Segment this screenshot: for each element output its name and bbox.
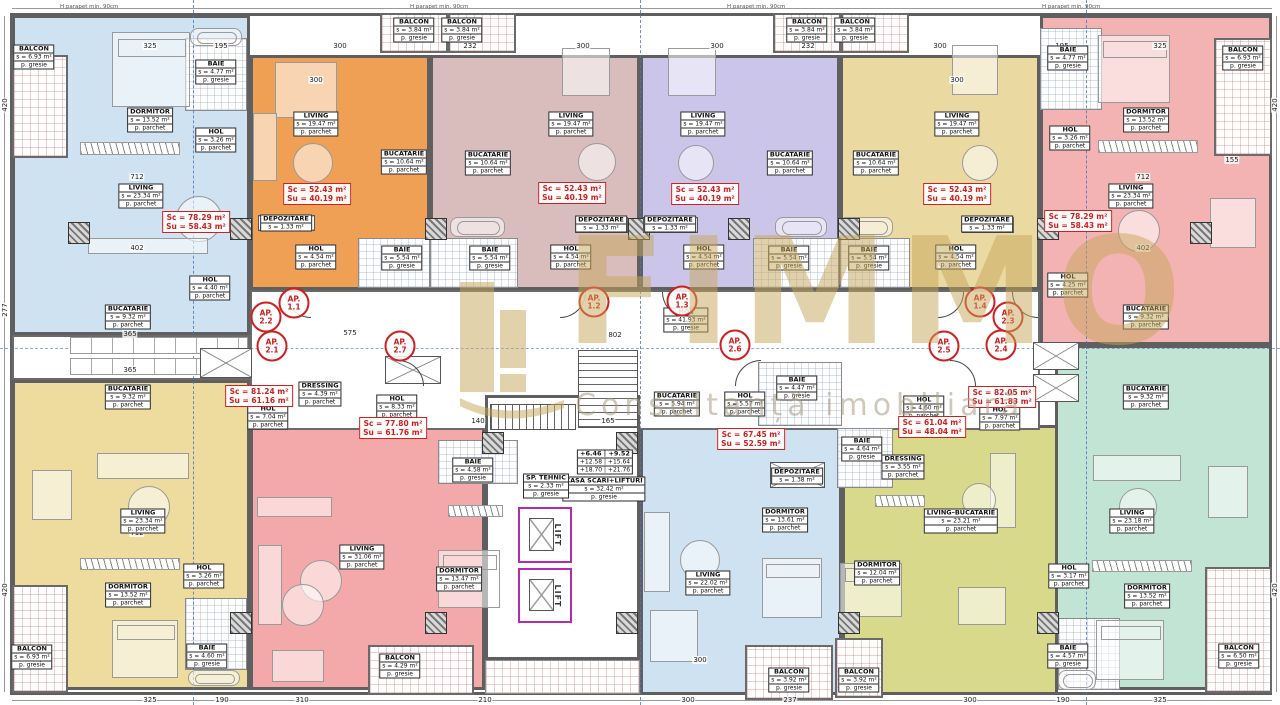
dimension-label: 325 bbox=[142, 42, 157, 50]
room-label: BAIEs = 4.47 m²p. gresie bbox=[776, 376, 817, 401]
furniture-rect bbox=[958, 587, 1006, 625]
room-label: BAIEs = 4.77 m²p. gresie bbox=[195, 60, 236, 85]
dimension-label: 190 bbox=[214, 696, 229, 704]
furniture-tub bbox=[188, 670, 240, 686]
dimension-label: 300 bbox=[949, 76, 964, 84]
room-label: BUCATARIEs = 10.64 m²p. parchet bbox=[767, 151, 813, 176]
furniture-rect bbox=[258, 545, 282, 625]
room-label: LIVINGs = 23.34 m²p. parchet bbox=[120, 509, 165, 534]
furniture-hatchstrip bbox=[80, 142, 180, 155]
furniture-rect bbox=[275, 62, 337, 118]
sc-su-label: Sc = 81.24 m²Su = 61.16 m² bbox=[225, 385, 293, 407]
room-label: LIVINGs = 23.18 m²p. parchet bbox=[1109, 509, 1154, 534]
dimension-label: 712 bbox=[129, 173, 144, 181]
technical-room-label: SP. TEHNICs = 2.33 m²p. gresie bbox=[523, 474, 569, 499]
room-label: HOLs = 3.26 m²p. parchet bbox=[195, 128, 236, 153]
furniture-rect bbox=[650, 610, 698, 662]
dimension-label: 300 bbox=[962, 696, 977, 704]
room-label: BUCATARIEs = 9.32 m²p. parchet bbox=[1123, 305, 1169, 330]
room-label: HOLs = 3.17 m²p. parchet bbox=[1048, 564, 1089, 589]
room-label: HOLs = 8.33 m²p. parchet bbox=[376, 395, 417, 420]
furniture-rect bbox=[952, 45, 998, 95]
dimension-label: 325 bbox=[1152, 696, 1167, 704]
structural-pier bbox=[1037, 612, 1059, 634]
room-label: BUCATARIEs = 10.64 m²p. parchet bbox=[381, 150, 427, 175]
dimension-label: 232 bbox=[462, 42, 477, 50]
room-label: LIVINGs = 31.06 m²p. parchet bbox=[339, 545, 384, 570]
room-label: HOLs = 5.57 m²p. parchet bbox=[724, 392, 765, 417]
balcony bbox=[12, 585, 68, 693]
balcony-label: BALCONs = 6.50 m²p. gresie bbox=[1218, 644, 1259, 669]
room-label: HOLs = 4.54 m²p. parchet bbox=[935, 245, 976, 270]
room-label: LIVINGs = 22.02 m²p. parchet bbox=[685, 571, 730, 596]
furniture-rect bbox=[644, 512, 670, 592]
furniture-tub bbox=[1058, 670, 1096, 690]
room-label: BUCATARIEs = 10.64 m²p. parchet bbox=[465, 151, 511, 176]
ap-badge: AP.1.2 bbox=[579, 287, 610, 318]
balcony-label: BALCONs = 3.84 m²p. gresie bbox=[834, 18, 875, 43]
dimension-label: 140 bbox=[470, 417, 485, 425]
structural-pier bbox=[68, 222, 90, 244]
furniture-hatchstrip bbox=[448, 505, 503, 517]
furniture-rect bbox=[253, 113, 277, 181]
furniture-circle bbox=[678, 145, 714, 181]
furniture-bed bbox=[762, 558, 822, 618]
ap-badge: AP.1.1 bbox=[279, 288, 310, 319]
sc-su-label: Sc = 52.43 m²Su = 40.19 m² bbox=[923, 183, 991, 205]
parapet-note: H parapet min. 90cm bbox=[410, 4, 468, 10]
balcony-label: BALCONs = 3.84 m²p. gresie bbox=[786, 18, 827, 43]
ap-badge: AP.2.3 bbox=[993, 302, 1024, 333]
furniture-rect bbox=[562, 48, 610, 96]
floor-plan: BALCONs = 6.93 m²p. gresieBALCONs = 3.84… bbox=[0, 0, 1280, 705]
structural-pier bbox=[616, 612, 638, 634]
sc-su-label: Sc = 52.43 m²Su = 40.19 m² bbox=[283, 183, 351, 205]
room-label: BAIEs = 4.64 m²p. gresie bbox=[841, 437, 882, 462]
parapet-note: H parapet min. 90cm bbox=[727, 4, 785, 10]
ap-badge: AP.2.2 bbox=[251, 302, 282, 333]
dimension-label: 277 bbox=[1, 302, 9, 317]
room-label: BUCATARIEs = 10.64 m²p. parchet bbox=[853, 151, 899, 176]
furniture-bed bbox=[1096, 620, 1164, 680]
dimension-label: 420 bbox=[1, 97, 9, 112]
furniture-bed bbox=[112, 620, 178, 678]
room-label: BUCATARIEs = 5.94 m²p. parchet bbox=[654, 392, 700, 417]
room-label: HOLs = 4.40 m²p. parchet bbox=[189, 276, 230, 301]
room-label: LIVING–BUCATARIEs = 23.21 m²p. parchet bbox=[924, 509, 998, 534]
dimension-line bbox=[12, 700, 1272, 701]
dimension-label: 300 bbox=[680, 696, 695, 704]
ap-badge: AP.2.7 bbox=[385, 331, 416, 362]
room-label: HOLs = 7.97 m²p. parchet bbox=[979, 406, 1020, 431]
dimension-label: 300 bbox=[709, 42, 724, 50]
furniture-hatchstrip bbox=[1092, 560, 1192, 572]
dimension-label: 210 bbox=[477, 696, 492, 704]
storage-box bbox=[200, 348, 252, 378]
ap-badge: AP.2.6 bbox=[720, 330, 751, 361]
room-label: HOLs = 4.54 m²p. parchet bbox=[550, 245, 591, 270]
ap-badge: AP.1.4 bbox=[965, 287, 996, 318]
room-label: BUCATARIEs = 9.32 m²p. parchet bbox=[105, 305, 151, 330]
dimension-label: 300 bbox=[308, 76, 323, 84]
structural-pier bbox=[838, 218, 860, 240]
dimension-label: 300 bbox=[692, 656, 707, 664]
dimension-label: 325 bbox=[142, 696, 157, 704]
balcony-label: BALCONs = 4.29 m²p. gresie bbox=[379, 654, 420, 679]
room-label: DEPOZITAREs = 1.38 m² bbox=[771, 468, 823, 485]
sc-su-label: Sc = 67.45 m²Su = 52.59 m² bbox=[717, 428, 785, 450]
parapet-note: H parapet min. 90cm bbox=[1042, 4, 1100, 10]
furniture-hatchstrip bbox=[80, 558, 180, 570]
balcony-label: BALCONs = 3.84 m²p. gresie bbox=[393, 18, 434, 43]
dimension-label: 712 bbox=[1135, 173, 1150, 181]
dimension-label: 232 bbox=[800, 42, 815, 50]
sc-su-label: Sc = 52.43 m²Su = 40.19 m² bbox=[671, 183, 739, 205]
axis-line bbox=[1086, 0, 1087, 705]
room-label: DEPOZITAREs = 1.33 m² bbox=[644, 216, 696, 233]
storage-box bbox=[1033, 374, 1079, 402]
dimension-label: 420 bbox=[1271, 582, 1279, 597]
dimension-label: 300 bbox=[575, 42, 590, 50]
room-label: BUCATARIEs = 9.32 m²p. parchet bbox=[105, 385, 151, 410]
room-label: BUCATARIEs = 9.32 m²p. parchet bbox=[1123, 385, 1169, 410]
room-label: BAIEs = 5.54 m²p. gresie bbox=[768, 246, 809, 271]
room-label: DRESSINGs = 3.55 m²p. parchet bbox=[881, 455, 924, 480]
dimension-label: 310 bbox=[294, 696, 309, 704]
room-label: DEPOZITAREs = 1.33 m² bbox=[575, 216, 627, 233]
sc-su-label: Sc = 82.05 m²Su = 61.83 m² bbox=[968, 386, 1036, 408]
room-label: DORMITORs = 13.52 m²p. parchet bbox=[105, 583, 151, 608]
lift-shaft: LIFT bbox=[518, 568, 572, 623]
room-label: BAIEs = 5.54 m²p. gresie bbox=[848, 246, 889, 271]
room-label: DORMITORs = 13.52 m²p. parchet bbox=[1123, 108, 1169, 133]
room-label: DORMITORs = 13.52 m²p. parchet bbox=[127, 108, 173, 133]
structural-pier bbox=[482, 432, 504, 454]
room-label: DORMITORs = 13.61 m²p. parchet bbox=[762, 508, 808, 533]
furniture-rect bbox=[1208, 466, 1248, 518]
ap-badge: AP.2.1 bbox=[257, 331, 288, 362]
structural-pier bbox=[425, 612, 447, 634]
room-label: BAIEs = 5.54 m²p. gresie bbox=[469, 246, 510, 271]
structural-pier bbox=[230, 612, 252, 634]
dimension-label: 402 bbox=[1135, 244, 1150, 252]
sc-su-label: Sc = 78.29 m²Su = 58.43 m² bbox=[1044, 210, 1112, 232]
stair-core-label: CASA SCARI+LIFTURIs = 32.42 m²p. gresie bbox=[562, 477, 645, 502]
sc-su-label: Sc = 77.80 m²Su = 61.76 m² bbox=[359, 417, 427, 439]
room-label: HOLs = 3.26 m²p. parchet bbox=[1049, 126, 1090, 151]
balcony-label: BALCONs = 3.92 m²p. gresie bbox=[768, 668, 809, 693]
balcony bbox=[12, 55, 68, 158]
ap-badge: AP.2.4 bbox=[986, 330, 1017, 361]
structural-pier bbox=[1190, 222, 1212, 244]
axis-line bbox=[640, 0, 641, 705]
furniture-circle bbox=[578, 143, 616, 181]
furniture-tub bbox=[450, 217, 505, 237]
structural-pier bbox=[425, 218, 447, 240]
storage-box bbox=[1033, 342, 1079, 370]
furniture-rect bbox=[668, 48, 716, 96]
sc-su-label: Sc = 61.04 m²Su = 48.04 m² bbox=[898, 416, 966, 438]
furniture-hatchstrip bbox=[1098, 140, 1198, 153]
balcony-label: BALCONs = 3.84 m²p. gresie bbox=[441, 18, 482, 43]
furniture-tub bbox=[775, 217, 827, 237]
sc-su-label: Sc = 78.29 m²Su = 58.43 m² bbox=[162, 211, 230, 233]
room-label: BAIEs = 4.57 m²p. gresie bbox=[1047, 644, 1088, 669]
room-label: HOLs = 4.25 m²p. parchet bbox=[1047, 273, 1088, 298]
ap-badge: AP.1.3 bbox=[667, 286, 698, 317]
levels-label: +6.46 | +9.52+12.58 | +15.64+18.70 | +21… bbox=[577, 450, 633, 475]
dimension-label: 155 bbox=[1224, 156, 1239, 164]
lift-shaft: LIFT bbox=[518, 507, 572, 563]
room-label: DEPOZITAREs = 1.33 m² bbox=[961, 216, 1013, 233]
dimension-label: 325 bbox=[1152, 42, 1167, 50]
furniture-circle bbox=[962, 145, 998, 181]
room-label: DEPOZITAREs = 1.33 m² bbox=[260, 215, 312, 232]
room-label: LIVINGs = 23.34 m²p. parchet bbox=[1108, 184, 1153, 209]
terrace bbox=[485, 660, 640, 694]
room-label: DRESSINGs = 4.39 m²p. parchet bbox=[298, 382, 341, 407]
room-label: HOLs = 4.54 m²p. parchet bbox=[683, 245, 724, 270]
balcony-label: BALCONs = 6.93 m²p. gresie bbox=[11, 645, 52, 670]
dimension-label: 365 bbox=[122, 366, 137, 374]
dimension-label: 365 bbox=[122, 330, 137, 338]
room-label: DORMITORs = 13.47 m²p. parchet bbox=[436, 567, 482, 592]
room-label: HOLs = 3.26 m²p. parchet bbox=[183, 564, 224, 589]
dimension-label: 190 bbox=[1055, 696, 1070, 704]
room-label: DORMITORs = 13.52 m²p. parchet bbox=[1124, 584, 1170, 609]
room-label: LIVINGs = 19.47 m²p. parchet bbox=[680, 112, 725, 137]
parapet-note: H parapet min. 90cm bbox=[60, 4, 118, 10]
furniture-rect bbox=[1210, 198, 1256, 248]
balcony bbox=[1205, 567, 1272, 693]
room-label: HOLs = 4.54 m²p. parchet bbox=[295, 245, 336, 270]
dimension-label: 165 bbox=[600, 417, 615, 425]
dimension-label: 420 bbox=[1271, 97, 1279, 112]
room-label: HOLs = 7.04 m²p. parchet bbox=[247, 405, 288, 430]
structural-pier bbox=[838, 612, 860, 634]
structural-pier bbox=[230, 218, 252, 240]
balcony-label: BALCONs = 3.92 m²p. gresie bbox=[838, 668, 879, 693]
room-label: LIVINGs = 23.34 m²p. parchet bbox=[118, 184, 163, 209]
balcony-label: BALCONs = 6.93 m²p. gresie bbox=[13, 45, 54, 70]
furniture-rect bbox=[97, 453, 189, 479]
dimension-label: 300 bbox=[932, 42, 947, 50]
furniture-rect bbox=[257, 497, 332, 517]
room-label: BAIEs = 4.58 m²p. gresie bbox=[452, 458, 493, 483]
dimension-label: 195 bbox=[213, 42, 228, 50]
dimension-label: 300 bbox=[332, 42, 347, 50]
dimension-label: 420 bbox=[1, 582, 9, 597]
dimension-label: 802 bbox=[607, 331, 622, 339]
room-label: DORMITORs = 12.04 m²p. parchet bbox=[854, 561, 900, 586]
furniture-rect bbox=[1093, 455, 1181, 481]
room-label: LIVINGs = 19.47 m²p. parchet bbox=[548, 112, 593, 137]
furniture-rect bbox=[32, 470, 72, 520]
furniture-rect bbox=[88, 238, 208, 254]
furniture-circle bbox=[282, 584, 324, 626]
furniture-rect bbox=[272, 650, 324, 682]
ap-badge: AP.2.5 bbox=[929, 331, 960, 362]
dimension-label: 575 bbox=[342, 329, 357, 337]
dimension-label: 237 bbox=[782, 696, 797, 704]
dimension-label: 402 bbox=[129, 244, 144, 252]
balcony-label: BALCONs = 6.93 m²p. gresie bbox=[1222, 46, 1263, 71]
furniture-circle bbox=[293, 143, 333, 183]
sc-su-label: Sc = 52.43 m²Su = 40.19 m² bbox=[538, 182, 606, 204]
stair-treads bbox=[490, 404, 576, 430]
room-label: LIVINGs = 19.47 m²p. parchet bbox=[293, 112, 338, 137]
room-label: LIVINGs = 19.47 m²p. parchet bbox=[934, 112, 979, 137]
room-label: BAIEs = 5.54 m²p. gresie bbox=[381, 246, 422, 271]
furniture-hatchstrip bbox=[875, 495, 925, 507]
room-label: BAIEs = 4.60 m²p. gresie bbox=[186, 644, 227, 669]
room-label: BAIEs = 4.77 m²p. gresie bbox=[1047, 46, 1088, 71]
structural-pier bbox=[728, 218, 750, 240]
